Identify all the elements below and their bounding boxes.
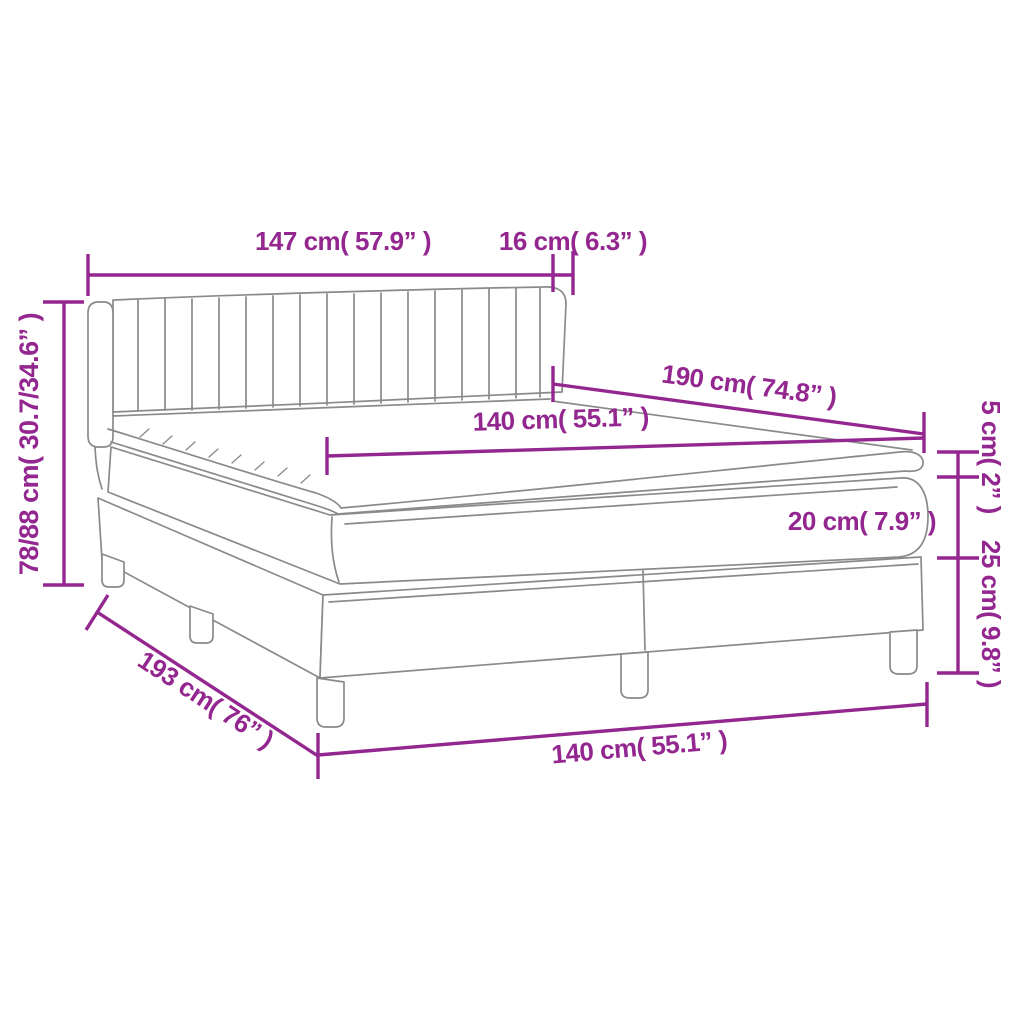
topper-height-label: 5 cm( 2” ) — [976, 400, 1006, 514]
total-height-label: 78/88 cm( 30.7/34.6” ) — [14, 313, 44, 575]
base-height-label: 25 cm( 9.8” ) — [976, 540, 1006, 688]
bed-leg — [890, 630, 917, 674]
diagram-canvas: 147 cm( 57.9” ) 16 cm( 6.3” ) 78/88 cm( … — [0, 0, 1024, 1024]
bed-dimension-diagram: 147 cm( 57.9” ) 16 cm( 6.3” ) 78/88 cm( … — [0, 0, 1024, 1024]
dimension-right-heights — [937, 452, 979, 673]
dimension-width-bottom — [318, 682, 927, 779]
headboard-wing — [88, 302, 113, 447]
mattress-height-label: 20 cm( 7.9” ) — [788, 506, 936, 536]
headboard-side-label: 16 cm( 6.3” ) — [499, 226, 647, 256]
bed-leg — [317, 678, 344, 727]
mattress-width-label: 140 cm( 55.1” ) — [472, 401, 649, 437]
length-top-label: 190 cm( 74.8” ) — [660, 358, 838, 411]
headboard-width-label: 147 cm( 57.9” ) — [255, 226, 431, 256]
bed-leg — [621, 652, 648, 698]
headboard-wing-leg — [95, 447, 102, 489]
headboard — [113, 287, 566, 412]
width-bottom-label: 140 cm( 55.1” ) — [550, 725, 728, 770]
dimension-total-height — [43, 302, 84, 585]
length-side-label: 193 cm( 76” ) — [133, 645, 280, 755]
